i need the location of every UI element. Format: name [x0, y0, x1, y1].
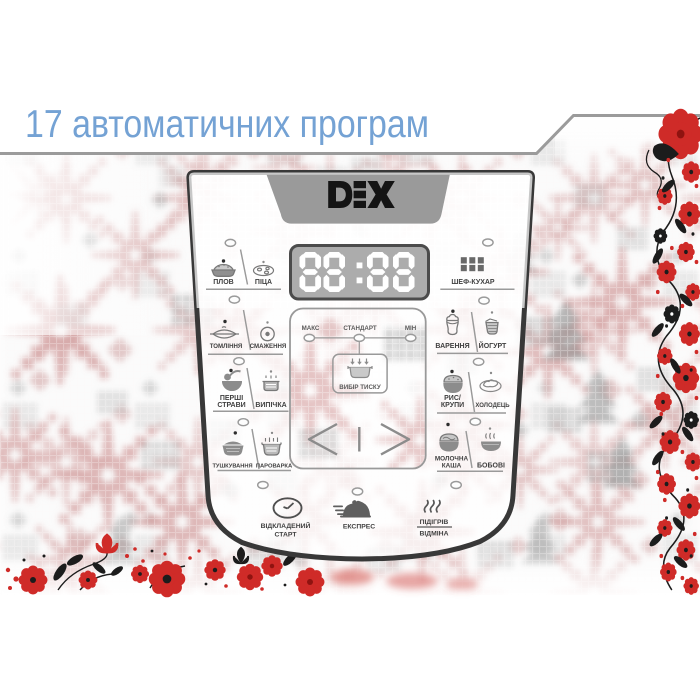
svg-text:ВІДМІНА: ВІДМІНА: [419, 531, 448, 538]
svg-text:РИС/КРУПИ: РИС/КРУПИ: [441, 395, 464, 409]
svg-text:ТОМЛІННЯ: ТОМЛІННЯ: [210, 343, 243, 350]
svg-text:ПЛОВ: ПЛОВ: [213, 279, 233, 286]
svg-text:ПІЦА: ПІЦА: [255, 279, 272, 286]
svg-text:МІН: МІН: [405, 325, 417, 332]
svg-text:ТУШКУВАННЯ: ТУШКУВАННЯ: [212, 463, 252, 469]
svg-text:ВИБІР ТИСКУ: ВИБІР ТИСКУ: [339, 384, 381, 391]
svg-text:ЙОГУРТ: ЙОГУРТ: [479, 341, 507, 350]
svg-text:ШЕФ-КУХАР: ШЕФ-КУХАР: [451, 279, 495, 286]
svg-text:ХОЛОДЕЦЬ: ХОЛОДЕЦЬ: [475, 403, 510, 409]
svg-text:МАКС: МАКС: [302, 325, 320, 332]
svg-text:ВИПІЧКА: ВИПІЧКА: [255, 402, 286, 409]
svg-text:ПАРОВАРКА: ПАРОВАРКА: [256, 463, 293, 469]
svg-text:ЕКСПРЕС: ЕКСПРЕС: [343, 524, 375, 531]
svg-text:СМАЖЕННЯ: СМАЖЕННЯ: [250, 343, 287, 350]
svg-text:17 автоматичних програм: 17 автоматичних програм: [25, 103, 429, 146]
svg-text:ПЕРШІСТРАВИ: ПЕРШІСТРАВИ: [217, 395, 245, 409]
svg-text:ВАРЕННЯ: ВАРЕННЯ: [435, 343, 469, 350]
svg-text:ПІДІГРІВ: ПІДІГРІВ: [420, 519, 449, 526]
svg-text:БОБОВІ: БОБОВІ: [477, 462, 505, 469]
svg-text:СТАНДАРТ: СТАНДАРТ: [343, 325, 377, 332]
